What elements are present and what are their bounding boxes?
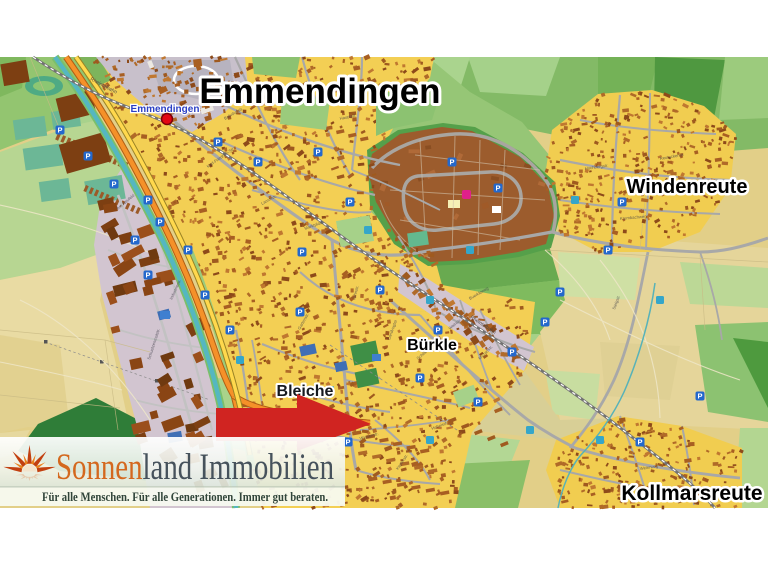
svg-text:P: P (697, 392, 702, 401)
svg-text:Windenreute: Windenreute (627, 176, 748, 198)
svg-text:P: P (227, 326, 232, 335)
svg-text:P: P (185, 246, 190, 255)
svg-text:P: P (345, 438, 350, 447)
svg-text:P: P (202, 291, 207, 300)
svg-text:P: P (605, 246, 610, 255)
svg-text:P: P (449, 158, 454, 167)
svg-text:Emmendingen: Emmendingen (199, 72, 440, 111)
svg-text:P: P (495, 184, 500, 193)
svg-text:P: P (377, 286, 382, 295)
svg-text:P: P (347, 198, 352, 207)
svg-text:P: P (637, 438, 642, 447)
svg-text:Kollmarsreute: Kollmarsreute (621, 482, 762, 505)
svg-text:P: P (145, 196, 150, 205)
svg-text:P: P (619, 198, 624, 207)
svg-text:P: P (111, 180, 116, 189)
svg-text:Bürkle: Bürkle (407, 337, 457, 354)
svg-text:P: P (299, 248, 304, 257)
svg-text:P: P (85, 152, 90, 161)
svg-text:P: P (557, 288, 562, 297)
svg-text:P: P (215, 138, 220, 147)
svg-text:Sonnenland Immobilien: Sonnenland Immobilien (56, 447, 334, 488)
svg-text:P: P (435, 326, 440, 335)
svg-text:P: P (132, 236, 137, 245)
svg-text:P: P (542, 318, 547, 327)
svg-text:P: P (145, 271, 150, 280)
svg-text:P: P (57, 126, 62, 135)
svg-text:P: P (157, 218, 162, 227)
svg-text:P: P (509, 348, 514, 357)
svg-text:P: P (475, 398, 480, 407)
svg-text:P: P (297, 308, 302, 317)
svg-text:P: P (255, 158, 260, 167)
svg-text:Für alle Menschen. Für alle Ge: Für alle Menschen. Für alle Generationen… (42, 489, 328, 504)
svg-text:P: P (417, 374, 422, 383)
svg-text:P: P (315, 148, 320, 157)
